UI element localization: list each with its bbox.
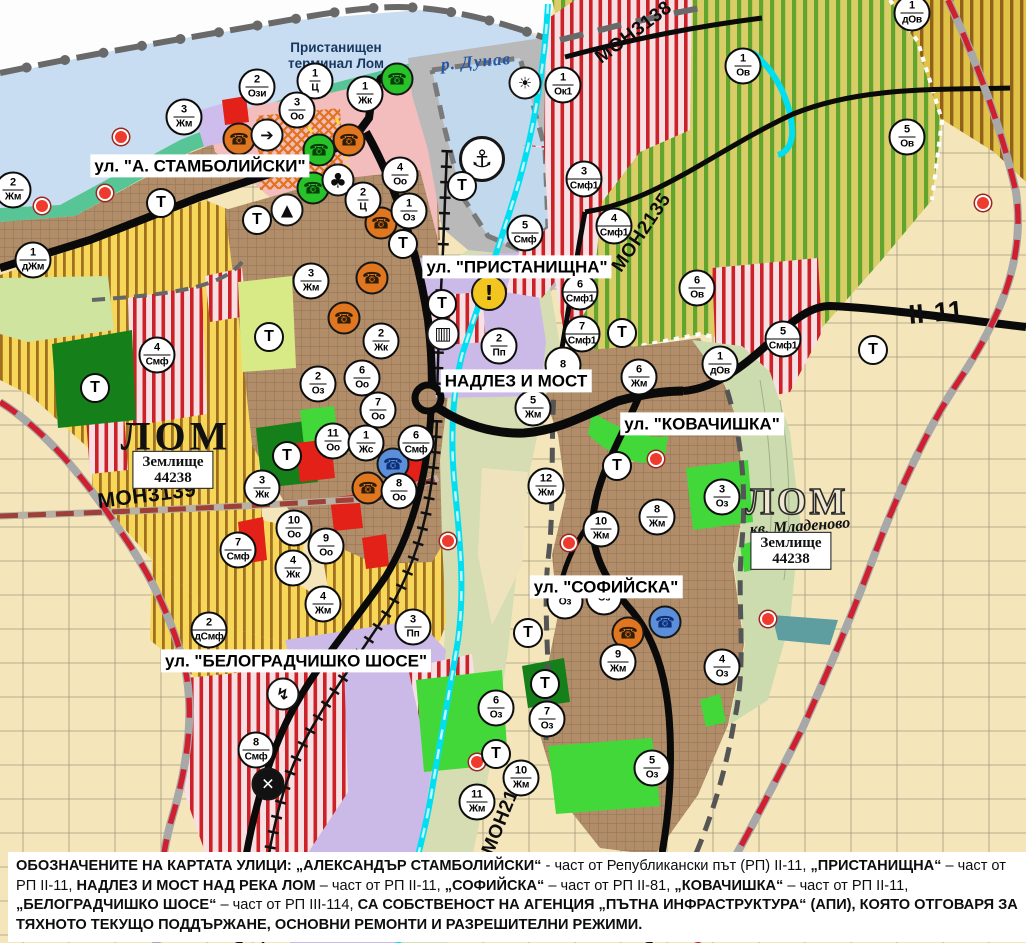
zone-marker-number: 4 <box>150 343 164 355</box>
zone-marker-code: Смф <box>225 550 252 563</box>
zone-marker-code: Смф1 <box>598 226 630 239</box>
area-label-river: р. Дунав <box>440 49 512 75</box>
zone-marker-code: Оз <box>714 667 730 680</box>
zone-marker-number: 9 <box>611 650 625 662</box>
zone-marker-code: Оо <box>285 528 303 541</box>
zone-marker-number: 8 <box>392 479 406 491</box>
zone-marker-code: Оо <box>324 441 342 454</box>
zone-marker-code: дОв <box>900 13 924 26</box>
street-label: НАДЛЕЗ И МОСТ <box>441 369 592 392</box>
zone-marker: 6Смф <box>398 425 435 462</box>
zone-marker-number: 10 <box>591 517 611 529</box>
road-label: МОН3138 <box>591 0 676 69</box>
street-label: ул. "А. СТАМБОЛИЙСКИ" <box>90 154 309 177</box>
zone-marker: 10Жм <box>503 760 540 797</box>
zone-marker-number: 5 <box>900 125 914 137</box>
zone-marker-number: 6 <box>690 276 704 288</box>
landholding-box: Землище 44238 <box>132 451 213 489</box>
zone-marker-code: Оо <box>353 378 371 391</box>
zone-marker: 2Ози <box>239 69 276 106</box>
t-marker: Т <box>607 318 637 348</box>
zone-marker-number: 1 <box>308 69 322 81</box>
zone-marker-number: 2 <box>6 178 20 190</box>
rail-crossing-icon: ✕ <box>252 768 285 801</box>
zone-marker: 6Ов <box>679 270 716 307</box>
street-label: ул. "СОФИЙСКА" <box>530 575 683 598</box>
zone-marker: 1Оз <box>391 193 428 230</box>
zone-marker-code: дЖм <box>20 260 46 273</box>
zone-marker-code: Оз <box>714 497 730 510</box>
t-marker: Т <box>146 188 176 218</box>
street-label: ул. "КОВАЧИШКА" <box>620 412 784 435</box>
zone-marker-number: 2 <box>202 618 216 630</box>
monument-icon: ☎ <box>352 472 385 505</box>
zone-marker: 6Смф1 <box>562 274 599 311</box>
zone-marker-code: Оо <box>391 175 409 188</box>
zone-marker-code: Оз <box>401 211 417 224</box>
zone-marker-number: 3 <box>304 269 318 281</box>
zone-marker: 1Жс <box>348 425 385 462</box>
zone-marker-code: Оз <box>539 719 555 732</box>
zone-marker: 3Оз <box>704 479 741 516</box>
zone-marker-number: 1 <box>713 352 727 364</box>
zone-marker: 2дСмф <box>191 612 228 649</box>
monument-icon: ☎ <box>333 124 366 157</box>
zone-marker-number: 7 <box>231 538 245 550</box>
t-marker: Т <box>272 441 302 471</box>
zone-marker: 3Оо <box>279 92 316 129</box>
t-marker: Т <box>242 205 272 235</box>
street-label: ул. "БЕЛОГРАДЧИШКО ШОСЕ" <box>161 649 431 672</box>
zone-marker-code: Оз <box>644 768 660 781</box>
red-dot <box>561 535 577 551</box>
zone-marker: 8Жм <box>639 499 676 536</box>
zone-marker-number: 11 <box>467 790 487 802</box>
lightning-icon: ↯ <box>267 678 300 711</box>
zone-marker-number: 1 <box>402 199 416 211</box>
red-dot <box>97 185 113 201</box>
zoning-map: 2Ози1Ц1Жк3Оо3Жм2Жм1дЖм4Оо2Ц1Оз1Ок15Смф3С… <box>0 0 1026 943</box>
zone-marker: 1дОв <box>894 0 931 32</box>
zone-marker-code: Жм <box>3 190 23 203</box>
zone-marker-number: 3 <box>177 105 191 117</box>
zone-marker-code: Оо <box>390 491 408 504</box>
zone-marker-number: 5 <box>776 327 790 339</box>
zone-marker-number: 6 <box>573 280 587 292</box>
t-marker: Т <box>388 229 418 259</box>
monument-icon: ☎ <box>328 302 361 335</box>
zone-marker: 7Оо <box>360 392 397 429</box>
zone-marker-code: Жм <box>629 377 649 390</box>
zone-marker-number: 10 <box>284 516 304 528</box>
zone-marker: 11Жм <box>459 784 496 821</box>
red-dot <box>760 611 776 627</box>
zone-marker-code: Оз <box>488 708 504 721</box>
zone-marker: 9Оо <box>308 528 345 565</box>
zone-marker: 8Смф <box>238 732 275 769</box>
zone-marker-number: 4 <box>393 163 407 175</box>
zone-marker: 3Жм <box>293 263 330 300</box>
zone-marker: 6Жм <box>621 359 658 396</box>
zone-marker: 9Жм <box>600 644 637 681</box>
zone-marker: 11Оо <box>315 423 352 460</box>
zone-marker-code: Ов <box>898 137 916 150</box>
zone-marker-number: 6 <box>409 431 423 443</box>
zone-marker: 3Пп <box>395 609 432 646</box>
zone-marker-number: 1 <box>556 73 570 85</box>
zone-marker-code: Жм <box>174 117 194 130</box>
zone-marker: 12Жм <box>528 468 565 505</box>
zone-marker-code: Смф1 <box>564 292 596 305</box>
zone-marker-number: 4 <box>715 655 729 667</box>
red-dot <box>648 451 664 467</box>
zone-marker: 5Жм <box>515 390 552 427</box>
zone-marker-number: 7 <box>540 707 554 719</box>
t-marker: Т <box>80 373 110 403</box>
zone-marker: 7Смф1 <box>564 316 601 353</box>
zone-marker-code: Жм <box>591 529 611 542</box>
zone-marker-number: 3 <box>406 615 420 627</box>
zone-marker: 2Оз <box>300 366 337 403</box>
zone-marker-number: 7 <box>575 322 589 334</box>
zone-marker-number: 2 <box>492 334 506 346</box>
red-dot <box>440 533 456 549</box>
zone-marker: 8Оо <box>381 473 418 510</box>
zone-marker: 2Ц <box>345 182 382 219</box>
zone-marker: 2Пп <box>481 328 518 365</box>
zone-marker-code: Ов <box>688 288 706 301</box>
zone-marker: 10Оо <box>276 510 313 547</box>
t-marker: Т <box>427 289 457 319</box>
zone-marker-number: 1 <box>358 82 372 94</box>
t-marker: Т <box>447 171 477 201</box>
zone-marker-number: 4 <box>316 592 330 604</box>
zone-marker-number: 6 <box>355 366 369 378</box>
zone-marker-number: 3 <box>577 167 591 179</box>
zone-marker-code: Жм <box>511 778 531 791</box>
zone-marker-code: Ов <box>734 66 752 79</box>
t-marker: Т <box>254 322 284 352</box>
zone-marker-number: 11 <box>323 429 343 441</box>
zone-marker-number: 7 <box>371 398 385 410</box>
zone-marker: 6Оз <box>478 690 515 727</box>
zone-marker-number: 1 <box>26 248 40 260</box>
zone-marker-number: 3 <box>290 98 304 110</box>
zone-marker: 5Смф <box>507 215 544 252</box>
zone-marker-code: Ок1 <box>552 85 574 98</box>
landholding-box: Землище 44238 <box>750 532 831 570</box>
zone-marker-number: 2 <box>356 188 370 200</box>
annotation-layer: 2Ози1Ц1Жк3Оо3Жм2Жм1дЖм4Оо2Ц1Оз1Ок15Смф3С… <box>0 0 1026 943</box>
zone-marker-number: 2 <box>374 329 388 341</box>
zone-marker-number: 8 <box>249 738 263 750</box>
warning-icon: ! <box>471 275 507 311</box>
zone-marker-number: 9 <box>319 534 333 546</box>
zone-marker: 2Жк <box>363 323 400 360</box>
zone-marker: 3Смф1 <box>566 161 603 198</box>
red-dot <box>975 195 991 211</box>
zone-marker-number: 4 <box>286 556 300 568</box>
zone-marker: 1дОв <box>702 346 739 383</box>
t-marker: Т <box>858 335 888 365</box>
zone-marker-code: Жк <box>253 488 271 501</box>
street-label: ул. "ПРИСТАНИЩНА" <box>422 255 611 278</box>
zone-marker-number: 5 <box>526 396 540 408</box>
zone-marker-code: Ози <box>246 87 268 100</box>
zone-marker-number: 12 <box>536 474 556 486</box>
zone-marker-code: Ц <box>309 81 320 94</box>
zone-marker-code: Оз <box>310 384 326 397</box>
monument-icon: ☎ <box>356 262 389 295</box>
zone-marker-code: Оо <box>369 410 387 423</box>
zone-marker-number: 1 <box>359 431 373 443</box>
red-dot <box>34 198 50 214</box>
t-marker: Т <box>602 451 632 481</box>
zone-marker-code: Жк <box>356 94 374 107</box>
zone-marker-number: 2 <box>250 75 264 87</box>
mountain-icon: ▲ <box>271 194 304 227</box>
zone-marker: 4Оо <box>382 157 419 194</box>
zone-marker-code: Оо <box>288 110 306 123</box>
zone-marker: 7Оз <box>529 701 566 738</box>
zone-marker-code: Жс <box>357 443 375 456</box>
zone-marker-code: дОв <box>708 364 732 377</box>
zone-marker-code: Смф <box>243 750 270 763</box>
zone-marker-number: 6 <box>632 365 646 377</box>
zone-marker-code: Жм <box>313 604 333 617</box>
zone-marker-code: Жк <box>372 341 390 354</box>
zone-marker-code: Жм <box>536 486 556 499</box>
zone-marker: 2Жм <box>0 172 32 209</box>
zone-marker-code: Жм <box>647 517 667 530</box>
zone-marker-number: 5 <box>518 221 532 233</box>
zone-marker: 4Жк <box>275 550 312 587</box>
zone-marker-code: Смф1 <box>767 339 799 352</box>
zone-marker-code: Жм <box>467 802 487 815</box>
zone-marker-code: Жк <box>284 568 302 581</box>
zone-marker-number: 8 <box>650 505 664 517</box>
zone-marker-code: Смф1 <box>568 179 600 192</box>
zone-marker-code: Жм <box>523 408 543 421</box>
zone-marker-number: 4 <box>607 214 621 226</box>
zone-marker-number: 2 <box>311 372 325 384</box>
sun-icon: ☀ <box>509 67 542 100</box>
monument-icon: ☎ <box>381 63 414 96</box>
zone-marker-code: Ц <box>357 200 368 213</box>
zone-marker: 1Ов <box>725 48 762 85</box>
zone-marker: 5Оз <box>634 750 671 787</box>
zone-marker: 10Жм <box>583 511 620 548</box>
monument-icon: ☎ <box>649 606 682 639</box>
road-label: II-11 <box>907 295 965 331</box>
red-dot <box>113 129 129 145</box>
zone-marker-code: Смф <box>512 233 539 246</box>
zone-marker: 1Ок1 <box>545 67 582 104</box>
zone-marker: 4Жм <box>305 586 342 623</box>
zone-marker: 5Ов <box>889 119 926 156</box>
zone-marker: 3Жк <box>244 470 281 507</box>
zone-marker: 7Смф <box>220 532 257 569</box>
zone-marker-number: 1 <box>736 54 750 66</box>
arrow-icon: ➔ <box>251 119 284 152</box>
zone-marker-number: 1 <box>905 1 919 13</box>
zone-marker-code: Пп <box>405 627 422 640</box>
zone-marker-code: Смф1 <box>566 334 598 347</box>
t-marker: Т <box>513 618 543 648</box>
t-marker: Т <box>530 669 560 699</box>
zone-marker-number: 3 <box>715 485 729 497</box>
zone-marker-code: Жм <box>608 662 628 675</box>
zone-marker-code: Пп <box>491 346 508 359</box>
zone-marker: 4Смф1 <box>596 208 633 245</box>
zone-marker-code: Жм <box>301 281 321 294</box>
zone-marker: 1Жк <box>347 76 384 113</box>
zone-marker: 4Оз <box>704 649 741 686</box>
zone-marker-number: 5 <box>645 756 659 768</box>
zone-marker: 1дЖм <box>15 242 52 279</box>
bus-icon: ▥ <box>427 318 460 351</box>
zone-marker-code: дСмф <box>193 630 226 643</box>
zone-marker-number: 3 <box>255 476 269 488</box>
zone-marker-number: 6 <box>489 696 503 708</box>
zone-marker: 3Жм <box>166 99 203 136</box>
zone-marker: 4Смф <box>139 337 176 374</box>
zone-marker-code: Смф <box>403 443 430 456</box>
zone-marker-code: Оо <box>317 546 335 559</box>
legend-note: ОБОЗНАЧЕНИТЕ НА КАРТАТА УЛИЦИ: „АЛЕКСАНД… <box>8 852 1026 942</box>
zone-marker-number: 10 <box>511 766 531 778</box>
zone-marker: 5Смф1 <box>765 321 802 358</box>
legend-text: ОБОЗНАЧЕНИТЕ НА КАРТАТА УЛИЦИ: „АЛЕКСАНД… <box>16 858 1018 933</box>
zone-marker-code: Смф <box>144 355 171 368</box>
